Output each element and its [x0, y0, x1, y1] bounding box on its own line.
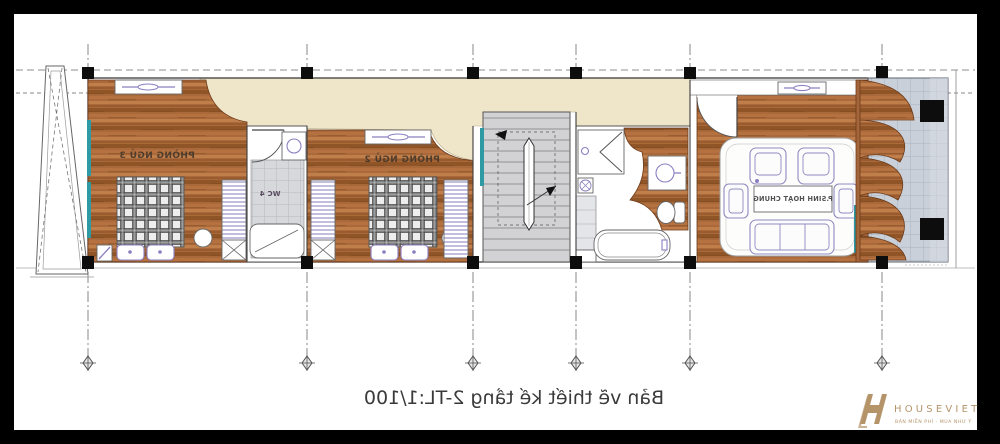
window-icon — [115, 80, 182, 94]
floor-drain-icon — [578, 178, 593, 193]
bed-icon — [117, 177, 184, 247]
floor-plan-screenshot: PHÒNG NGỦ 3 WC 4 — [0, 0, 1000, 444]
brand-name: HOUSEVIET — [894, 404, 980, 415]
bathroom — [576, 126, 690, 262]
armchair-icon — [750, 148, 786, 184]
window-glass — [480, 128, 484, 186]
shelf-icon — [576, 196, 596, 250]
sink-icon — [648, 156, 686, 190]
stool-icon — [194, 229, 212, 247]
wc-4: WC 4 — [247, 126, 307, 262]
bed-icon — [369, 177, 437, 247]
shower-icon — [578, 130, 624, 174]
wardrobe-icon — [444, 180, 468, 258]
window-icon — [365, 130, 431, 144]
bathtub-icon — [250, 224, 304, 258]
column-marker — [920, 100, 944, 122]
plan-title: Bản vẽ thiết kế tầng 2-TL:1/100 — [364, 387, 664, 409]
window-glass — [87, 120, 91, 176]
svg-text:Bản vẽ thiết kế tầng 2-TL:1/10: Bản vẽ thiết kế tầng 2-TL:1/100 — [364, 387, 664, 409]
column-marker — [920, 218, 944, 240]
side-chair-icon — [724, 184, 748, 218]
window-icon — [778, 82, 826, 94]
staircase — [480, 112, 570, 262]
armchair-icon — [798, 148, 834, 184]
living-room-label: P.SINH HOẠT CHUNG — [753, 195, 833, 203]
floor-plan-svg: PHÒNG NGỦ 3 WC 4 — [0, 0, 1000, 444]
bathtub-icon — [594, 230, 670, 260]
toilet-icon — [657, 202, 685, 224]
sofa-icon — [750, 220, 834, 254]
living-room: P.SINH HOẠT CHUNG — [690, 80, 868, 262]
wc-4-label: WC 4 — [260, 190, 281, 198]
window-glass — [87, 182, 91, 238]
